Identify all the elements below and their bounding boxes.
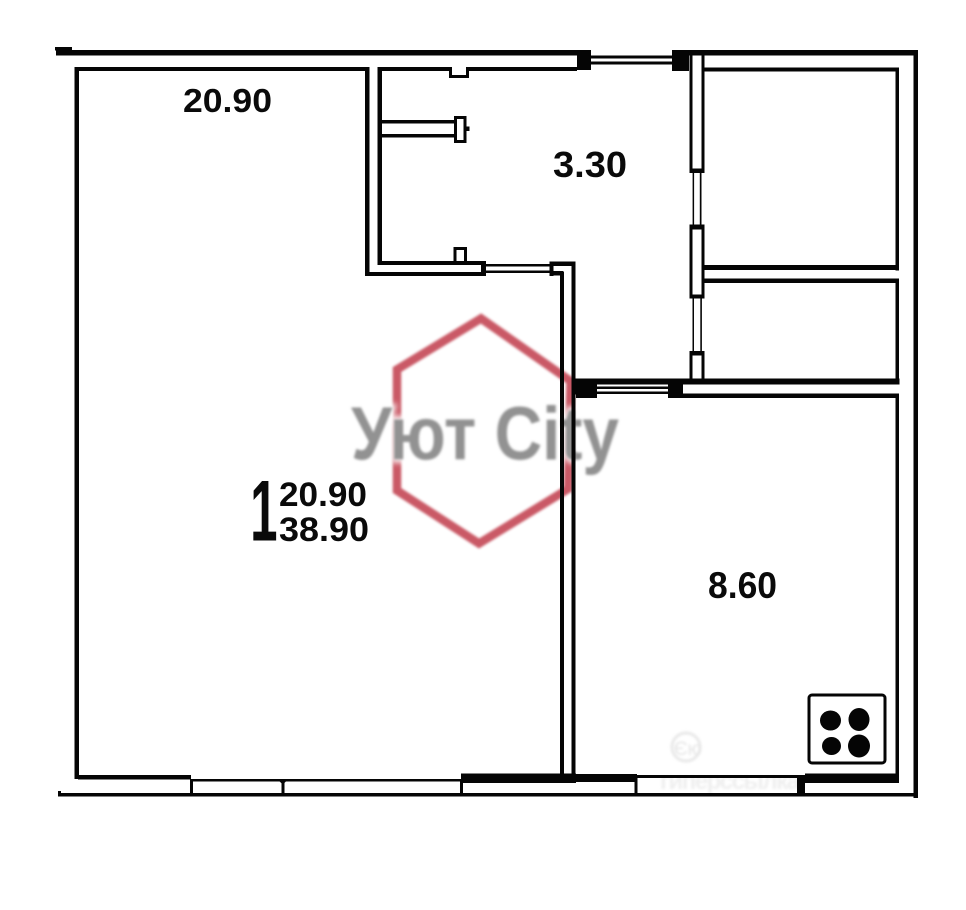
- svg-text:20.90: 20.90: [279, 476, 367, 514]
- svg-text:8.60: 8.60: [708, 565, 777, 606]
- svg-text:Уют City: Уют City: [351, 392, 619, 476]
- svg-text:3.30: 3.30: [553, 144, 627, 185]
- svg-text:20.90: 20.90: [183, 82, 272, 119]
- svg-text:Єю: Єю: [674, 739, 702, 760]
- svg-text:гиперссылка: гиперссылка: [660, 768, 801, 795]
- svg-text:38.90: 38.90: [279, 511, 369, 549]
- svg-text:1: 1: [250, 463, 277, 559]
